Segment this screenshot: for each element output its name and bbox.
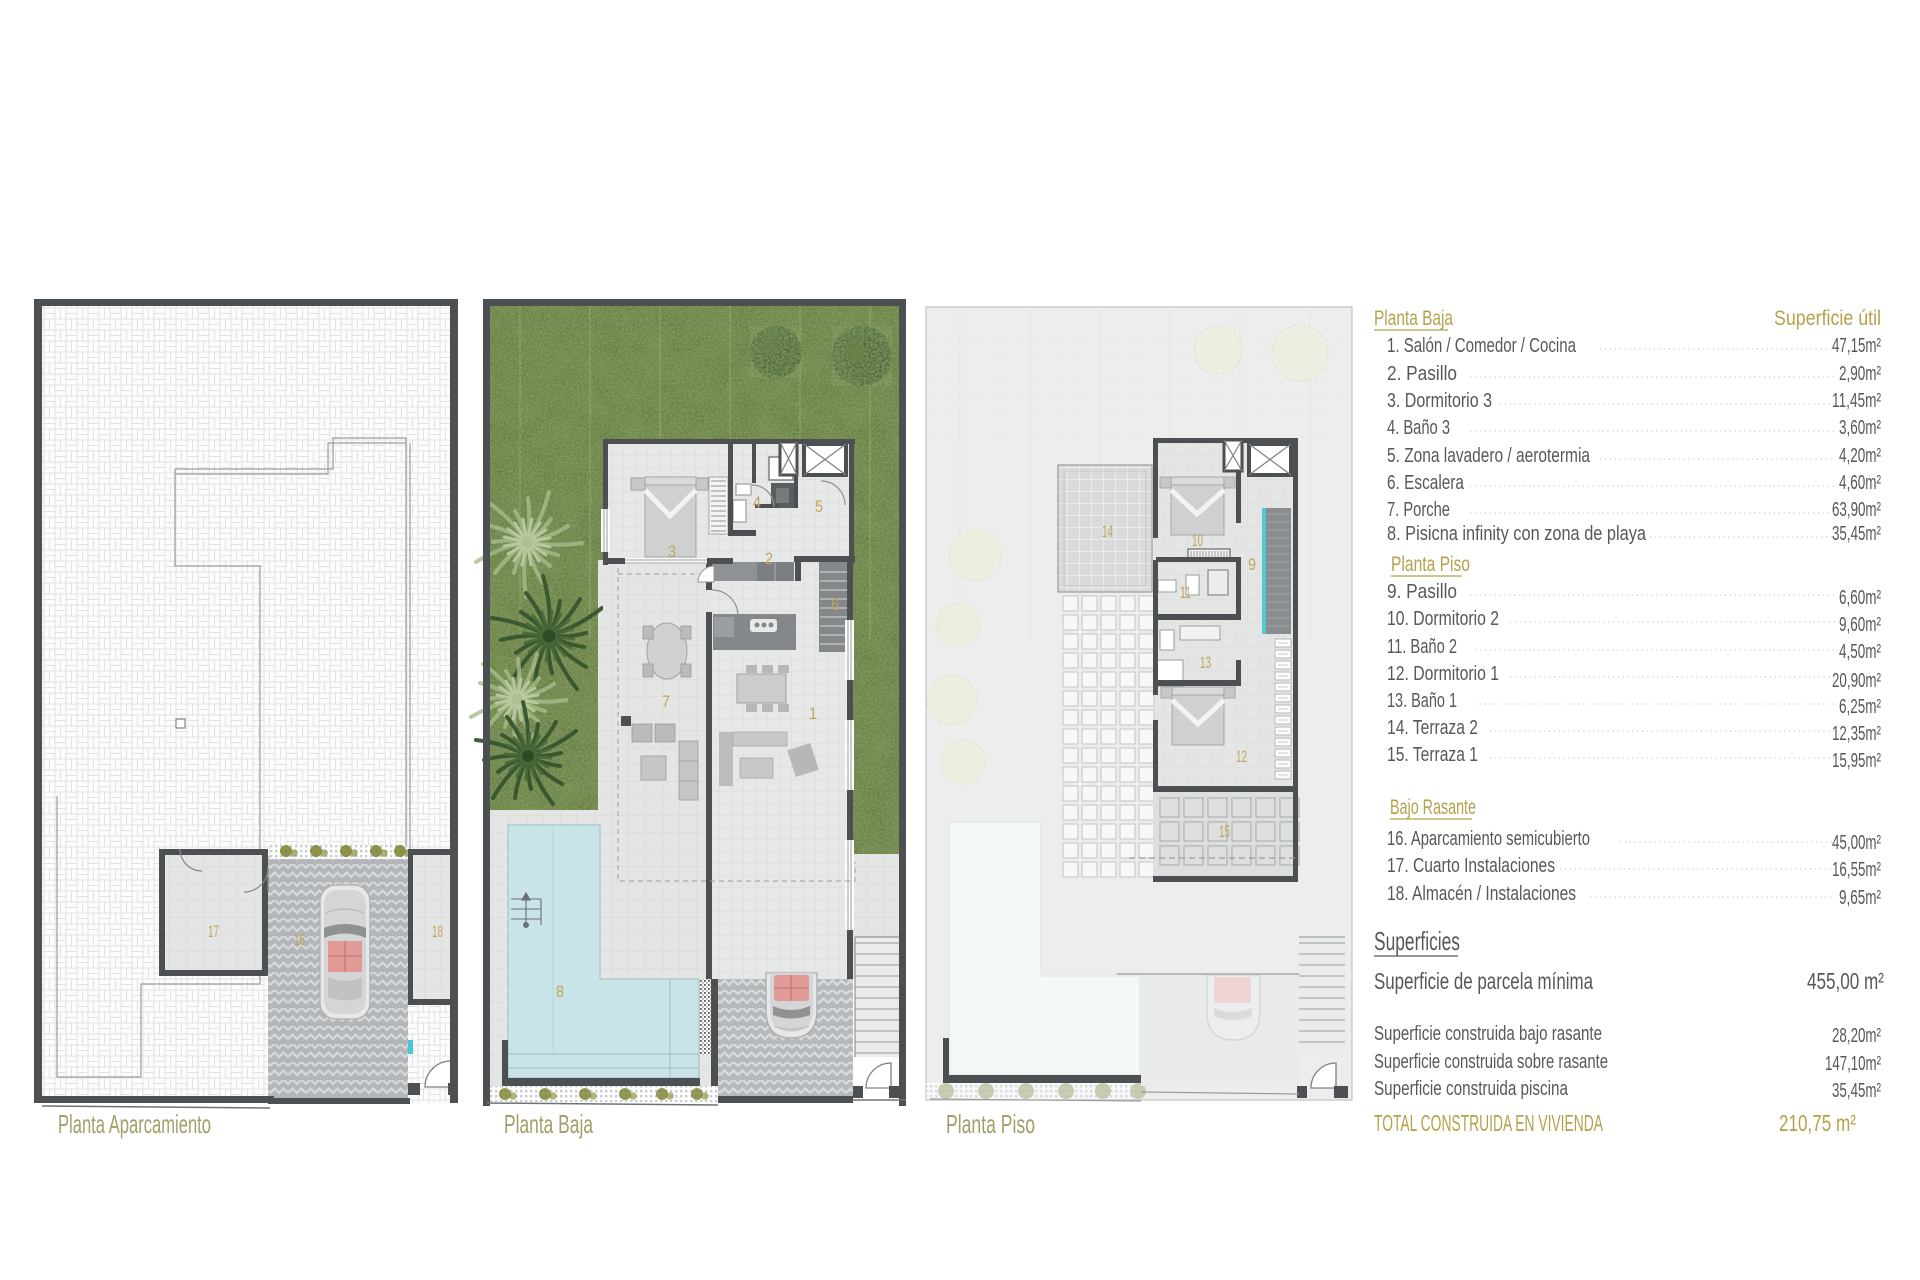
svg-text:10. Dormitorio 2: 10. Dormitorio 2 [1387, 608, 1499, 630]
svg-text:14: 14 [1102, 522, 1113, 541]
svg-text:5. Zona lavadero / aerotermia: 5. Zona lavadero / aerotermia [1387, 445, 1591, 467]
svg-text:13. Baño 1: 13. Baño 1 [1387, 690, 1457, 712]
svg-text:2: 2 [765, 549, 773, 568]
svg-text:11,45m²: 11,45m² [1832, 390, 1881, 412]
svg-text:210,75 m²: 210,75 m² [1779, 1110, 1856, 1136]
svg-text:9. Pasillo: 9. Pasillo [1387, 581, 1457, 603]
svg-text:Superficie útil: Superficie útil [1774, 307, 1881, 330]
svg-text:Superficie construida bajo ras: Superficie construida bajo rasante [1374, 1023, 1602, 1045]
svg-text:11: 11 [1180, 583, 1191, 602]
svg-text:1. Salón / Comedor / Cocina: 1. Salón / Comedor / Cocina [1387, 335, 1577, 357]
svg-text:13: 13 [1200, 653, 1211, 672]
svg-text:15,95m²: 15,95m² [1832, 750, 1881, 772]
svg-text:14. Terraza 2: 14. Terraza 2 [1387, 717, 1478, 739]
svg-text:Planta Aparcamiento: Planta Aparcamiento [58, 1109, 211, 1139]
svg-text:Superficies: Superficies [1374, 926, 1460, 956]
svg-text:18: 18 [432, 922, 443, 941]
svg-text:9: 9 [1248, 555, 1256, 574]
svg-text:17: 17 [208, 922, 219, 941]
svg-text:Planta Baja: Planta Baja [1374, 307, 1453, 330]
svg-text:63,90m²: 63,90m² [1832, 499, 1881, 521]
svg-text:35,45m²: 35,45m² [1832, 1080, 1881, 1102]
svg-text:Bajo Rasante: Bajo Rasante [1390, 796, 1476, 819]
svg-text:16: 16 [294, 930, 305, 949]
svg-text:4,50m²: 4,50m² [1839, 641, 1881, 663]
svg-text:2. Pasillo: 2. Pasillo [1387, 363, 1457, 385]
svg-text:Superficie construida piscina: Superficie construida piscina [1374, 1078, 1569, 1100]
svg-text:TOTAL CONSTRUIDA EN VIVIENDA: TOTAL CONSTRUIDA EN VIVIENDA [1374, 1110, 1603, 1136]
svg-text:4: 4 [753, 493, 761, 512]
svg-text:9,65m²: 9,65m² [1839, 887, 1881, 909]
svg-text:7: 7 [662, 692, 670, 711]
svg-text:4,60m²: 4,60m² [1839, 472, 1881, 494]
svg-text:Planta Piso: Planta Piso [946, 1109, 1035, 1139]
svg-text:7. Porche: 7. Porche [1387, 499, 1450, 521]
svg-text:28,20m²: 28,20m² [1832, 1025, 1881, 1047]
svg-text:4,20m²: 4,20m² [1839, 445, 1881, 467]
svg-text:12,35m²: 12,35m² [1832, 723, 1881, 745]
svg-text:455,00 m²: 455,00 m² [1807, 968, 1884, 994]
svg-text:6,60m²: 6,60m² [1839, 587, 1881, 609]
svg-text:12: 12 [1236, 747, 1247, 766]
svg-text:16,55m²: 16,55m² [1832, 859, 1881, 881]
svg-text:1: 1 [809, 704, 817, 723]
svg-text:18. Almacén / Instalaciones: 18. Almacén / Instalaciones [1387, 883, 1576, 905]
svg-text:6. Escalera: 6. Escalera [1387, 472, 1465, 494]
svg-text:Planta Piso: Planta Piso [1391, 553, 1470, 576]
svg-text:4. Baño 3: 4. Baño 3 [1387, 417, 1450, 439]
svg-text:10: 10 [1192, 531, 1203, 550]
svg-text:5: 5 [815, 497, 823, 516]
svg-text:12. Dormitorio 1: 12. Dormitorio 1 [1387, 663, 1499, 685]
svg-text:15: 15 [1219, 822, 1230, 841]
svg-text:16. Aparcamiento semicubierto: 16. Aparcamiento semicubierto [1387, 828, 1590, 850]
svg-text:35,45m²: 35,45m² [1832, 523, 1881, 545]
svg-text:Superficie construida sobre ra: Superficie construida sobre rasante [1374, 1051, 1608, 1073]
svg-text:11. Baño 2: 11. Baño 2 [1387, 636, 1457, 658]
svg-text:3,60m²: 3,60m² [1839, 417, 1881, 439]
svg-text:47,15m²: 47,15m² [1832, 335, 1881, 357]
svg-text:15. Terraza 1: 15. Terraza 1 [1387, 744, 1478, 766]
svg-text:3. Dormitorio 3: 3. Dormitorio 3 [1387, 390, 1492, 412]
svg-text:20,90m²: 20,90m² [1832, 670, 1881, 692]
svg-text:3: 3 [668, 542, 676, 561]
svg-text:8: 8 [556, 982, 564, 1001]
svg-text:6: 6 [831, 595, 839, 614]
svg-text:8. Pisicna infinity con zona d: 8. Pisicna infinity con zona de playa [1387, 523, 1647, 545]
svg-text:Superficie de parcela mínima: Superficie de parcela mínima [1374, 968, 1593, 994]
svg-text:6,25m²: 6,25m² [1839, 696, 1881, 718]
svg-text:17. Cuarto Instalaciones: 17. Cuarto Instalaciones [1387, 855, 1555, 877]
svg-text:9,60m²: 9,60m² [1839, 614, 1881, 636]
svg-text:Planta Baja: Planta Baja [504, 1109, 593, 1139]
svg-text:45,00m²: 45,00m² [1832, 832, 1881, 854]
svg-text:2,90m²: 2,90m² [1839, 363, 1881, 385]
svg-text:147,10m²: 147,10m² [1825, 1053, 1881, 1075]
